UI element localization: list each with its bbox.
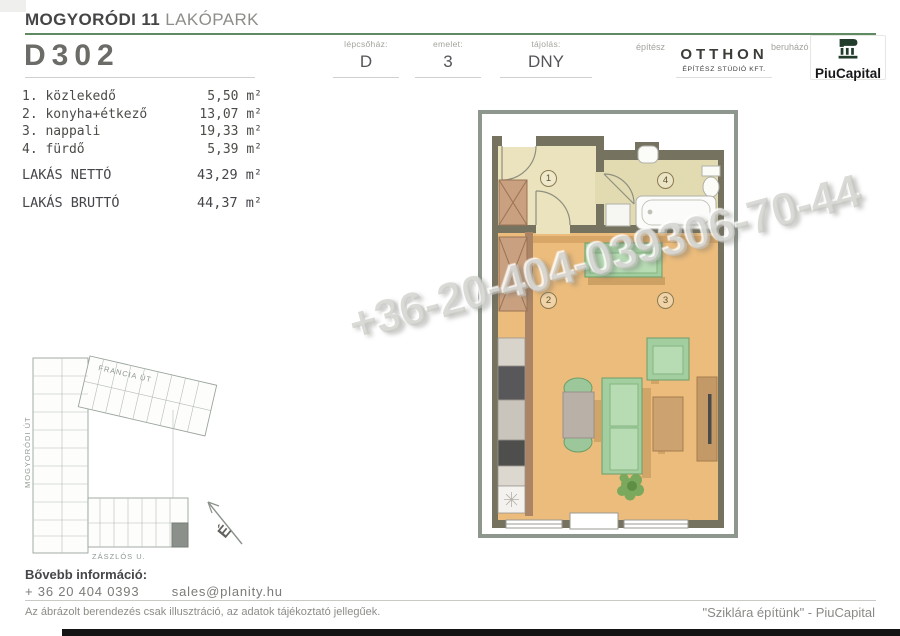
divider [676, 77, 772, 78]
kitchen-sink-icon [504, 492, 519, 507]
room-list-row: 1. közlekedő 5,50 m² [22, 89, 262, 104]
room-list-row: 2. konyha+étkező 13,07 m² [22, 107, 262, 122]
divider [25, 600, 876, 601]
architect-logo: OTTHON ÉPÍTÉSZ STÚDIÓ KFT. [676, 46, 772, 73]
plan-room-number-4: 4 [657, 172, 674, 189]
contact-line: + 36 20 404 0393 sales@planity.hu [25, 584, 283, 599]
room-area: 5,50 m² [207, 89, 262, 104]
gross-value: 44,37 m² [197, 195, 262, 211]
room-area: 19,33 m² [199, 124, 262, 139]
company-slogan: "Sziklára építünk" - PiuCapital [475, 605, 875, 620]
armchair [647, 338, 689, 384]
entry-door-opening [502, 135, 536, 147]
room-name: 4. fürdő [22, 142, 85, 157]
net-area-row: LAKÁS NETTÓ 43,29 m² [22, 167, 262, 183]
compass-north-icon: É [208, 502, 242, 544]
architect-label: építész [636, 42, 665, 52]
field-label: lépcsőház: [326, 39, 406, 49]
room-list-row: 4. fürdő 5,39 m² [22, 142, 262, 157]
street-label-bottom: ZÁSZLÓS U. [92, 552, 146, 561]
email-address: sales@planity.hu [172, 584, 283, 599]
kitchen-counter [498, 338, 525, 513]
highlighted-unit [172, 523, 188, 547]
room-area: 13,07 m² [199, 107, 262, 122]
apartment-id: D302 [24, 39, 120, 73]
field-label: tájolás: [498, 39, 594, 49]
street-label-left: MOGYORÓDI ÚT [23, 416, 32, 488]
divider [333, 77, 399, 78]
gross-area-row: LAKÁS BRUTTÓ 44,37 m² [22, 195, 262, 211]
disclaimer-text: Az ábrázolt berendezés csak illusztráció… [25, 606, 380, 618]
bath-door-opening [595, 172, 605, 204]
room-name: 3. nappali [22, 124, 100, 139]
hall-living-door-opening [536, 224, 570, 234]
field-staircase: lépcsőház: D [326, 39, 406, 72]
balcony-door [570, 513, 618, 529]
developer-logo: PiuCapital [810, 35, 886, 80]
field-label: emelet: [408, 39, 488, 49]
project-title-light: LAKÓPARK [165, 10, 259, 29]
floorplan-sheet: MOGYORÓDI 11 LAKÓPARK D302 lépcsőház: D … [0, 0, 900, 636]
wall [600, 150, 724, 160]
room-area: 5,39 m² [207, 142, 262, 157]
field-value: DNY [498, 52, 594, 72]
divider [500, 77, 592, 78]
room-name: 1. közlekedő [22, 89, 116, 104]
toilet-tank-icon [702, 166, 720, 176]
divider [25, 77, 255, 78]
project-title-bold: MOGYORÓDI 11 [25, 10, 160, 29]
wall [492, 136, 498, 528]
sideboard [653, 397, 683, 454]
scan-artifact [0, 0, 26, 12]
architect-name: OTTHON [676, 46, 772, 63]
room-name: 2. konyha+étkező [22, 107, 147, 122]
net-value: 43,29 m² [197, 167, 262, 183]
building-outline [33, 356, 217, 553]
phone-number: + 36 20 404 0393 [25, 584, 139, 599]
sofa-vertical [602, 378, 651, 478]
plan-room-number-1: 1 [540, 170, 557, 187]
more-info-label: Bővebb információ: [25, 567, 147, 582]
room-list-row: 3. nappali 19,33 m² [22, 124, 262, 139]
field-value: 3 [408, 52, 488, 72]
field-value: D [326, 52, 406, 72]
net-label: LAKÁS NETTÓ [22, 167, 111, 183]
architect-subtitle: ÉPÍTÉSZ STÚDIÓ KFT. [676, 66, 772, 73]
gross-label: LAKÁS BRUTTÓ [22, 195, 120, 211]
floor-plan [478, 110, 738, 538]
accent-rule [25, 33, 876, 35]
site-plan: FRANCIA ÚT MOGYORÓDI ÚT ZÁSZLÓS U. É [20, 348, 270, 562]
developer-name: PiuCapital [811, 66, 885, 81]
field-orientation: tájolás: DNY [498, 39, 594, 72]
tv-board [697, 377, 717, 461]
scan-edge-bar [62, 629, 900, 636]
toilet-icon [703, 177, 719, 197]
divider [415, 77, 481, 78]
developer-label: beruházó [771, 42, 809, 52]
sink-icon [638, 146, 658, 163]
compass-letter: É [214, 521, 236, 542]
project-title: MOGYORÓDI 11 LAKÓPARK [25, 10, 259, 30]
piucapital-building-icon [835, 38, 861, 60]
field-floor: emelet: 3 [408, 39, 488, 72]
plan-room-number-3: 3 [657, 292, 674, 309]
